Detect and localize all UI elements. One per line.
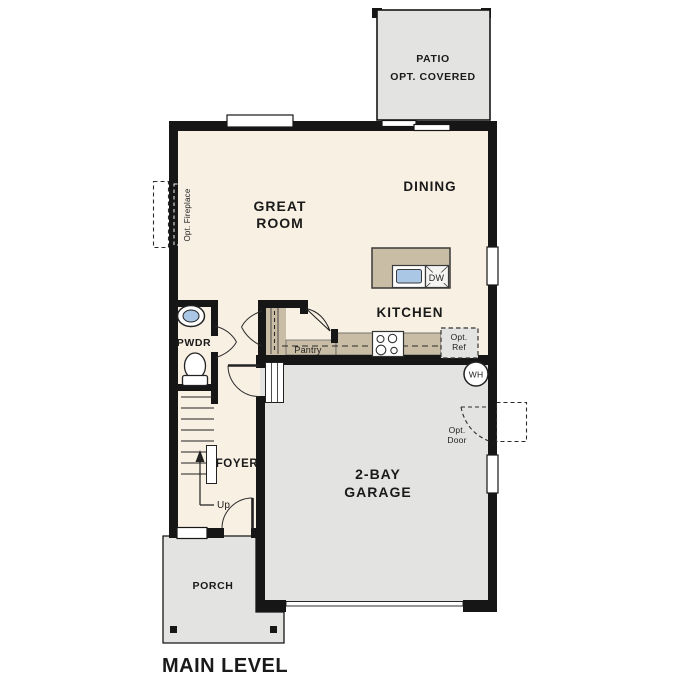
garage-door — [286, 602, 463, 607]
floor-plan-page: PATIO OPT. COVERED DW — [0, 0, 687, 687]
great-room-label: ROOM — [256, 215, 304, 231]
garage-bottom-wall-left — [256, 600, 286, 612]
garage-bottom-wall-right — [463, 600, 497, 612]
toilet-tank-icon — [183, 376, 208, 386]
coat-closet-floor — [266, 302, 286, 355]
pwdr-sink-basin — [183, 310, 199, 322]
front-wall-right — [251, 528, 265, 538]
pantry-right-wall — [331, 329, 338, 343]
pwdr-right-wall-upper — [211, 300, 218, 336]
foyer-window — [177, 528, 207, 539]
page-title: MAIN LEVEL — [162, 655, 288, 677]
pantry-corner-stub — [300, 300, 308, 314]
opt-fireplace-label: Opt. Fireplace — [183, 188, 192, 241]
kitchen-label: KITCHEN — [377, 305, 444, 320]
porch-post-icon — [170, 626, 177, 633]
great-room-label: GREAT — [254, 198, 307, 214]
patio-slider-panel — [382, 121, 416, 127]
opt-ref-label: Ref — [452, 342, 466, 352]
garage-window — [487, 455, 498, 493]
dishwasher-label: DW — [429, 273, 445, 283]
garage-label: 2-BAY — [355, 466, 401, 482]
dining-label: DINING — [403, 179, 456, 194]
garage-label: GARAGE — [344, 484, 411, 500]
great-room-window — [227, 115, 293, 127]
sink-basin — [397, 270, 422, 284]
patio-label: PATIO — [416, 53, 450, 65]
porch-label: PORCH — [193, 580, 234, 592]
porch-post-icon — [270, 626, 277, 633]
patio-slider-panel — [414, 125, 450, 131]
garage-steps — [266, 363, 284, 403]
floor-plan-canvas: PATIO OPT. COVERED DW — [0, 0, 687, 687]
stair-wall-stub — [211, 384, 218, 404]
opt-ref-label: Opt. — [451, 332, 468, 342]
dining-window — [487, 247, 498, 285]
garage-floor — [260, 360, 493, 605]
right-exterior-wall-upper — [488, 121, 497, 367]
foyer-label: FOYER — [216, 458, 259, 470]
water-heater-label: WH — [469, 370, 484, 380]
closet-left-wall — [258, 300, 266, 357]
opt-door-label: Door — [447, 435, 466, 445]
left-exterior-wall — [169, 121, 178, 536]
pwdr-label: PWDR — [177, 337, 211, 349]
patio-floor — [377, 10, 490, 120]
patio-opt-covered-label: OPT. COVERED — [390, 71, 475, 83]
garage-left-wall-lower — [256, 396, 265, 612]
pantry-label: Pantry — [294, 345, 322, 355]
pantry-top-wall — [258, 300, 306, 308]
opt-door-label: Opt. — [449, 425, 466, 435]
